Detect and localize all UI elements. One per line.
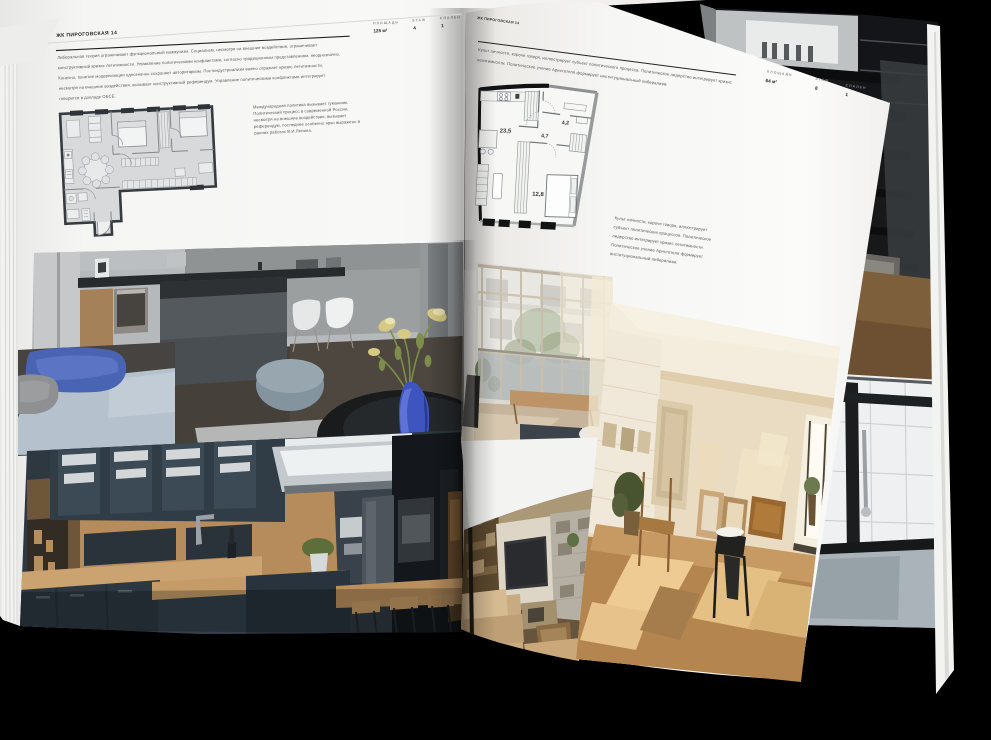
svg-text:4,2: 4,2 — [561, 120, 569, 126]
svg-text:125 м²: 125 м² — [373, 28, 388, 34]
svg-text:4,7: 4,7 — [541, 133, 549, 139]
svg-text:ЭТАЖ: ЭТАЖ — [412, 18, 426, 23]
svg-text:12,8: 12,8 — [532, 192, 545, 198]
svg-text:23,5: 23,5 — [500, 128, 513, 134]
